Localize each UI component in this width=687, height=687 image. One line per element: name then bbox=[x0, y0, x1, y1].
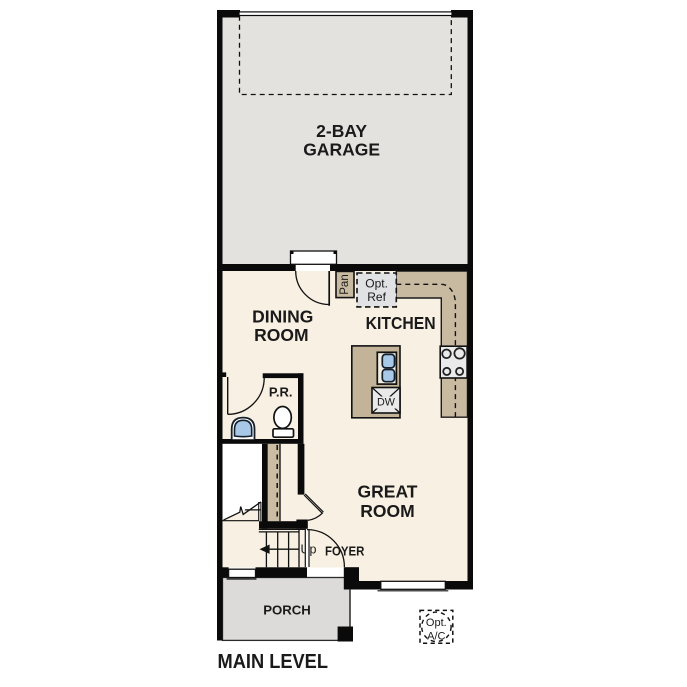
svg-text:Opt.: Opt. bbox=[365, 277, 388, 291]
svg-text:GARAGE: GARAGE bbox=[303, 140, 380, 160]
svg-text:ROOM: ROOM bbox=[254, 325, 308, 345]
svg-text:P.R.: P.R. bbox=[269, 385, 293, 400]
svg-text:FOYER: FOYER bbox=[325, 544, 365, 559]
svg-text:KITCHEN: KITCHEN bbox=[366, 313, 436, 333]
svg-text:DW: DW bbox=[377, 397, 396, 409]
svg-text:2-BAY: 2-BAY bbox=[316, 121, 367, 141]
svg-text:DINING: DINING bbox=[252, 307, 313, 327]
svg-text:Opt.: Opt. bbox=[426, 617, 447, 629]
svg-text:MAIN LEVEL: MAIN LEVEL bbox=[218, 651, 329, 673]
svg-text:Pan: Pan bbox=[339, 274, 351, 294]
svg-text:PORCH: PORCH bbox=[263, 603, 311, 618]
svg-text:GREAT: GREAT bbox=[358, 482, 418, 502]
svg-text:A/C: A/C bbox=[427, 631, 445, 643]
svg-text:Ref: Ref bbox=[367, 290, 386, 304]
svg-text:ROOM: ROOM bbox=[360, 501, 414, 521]
